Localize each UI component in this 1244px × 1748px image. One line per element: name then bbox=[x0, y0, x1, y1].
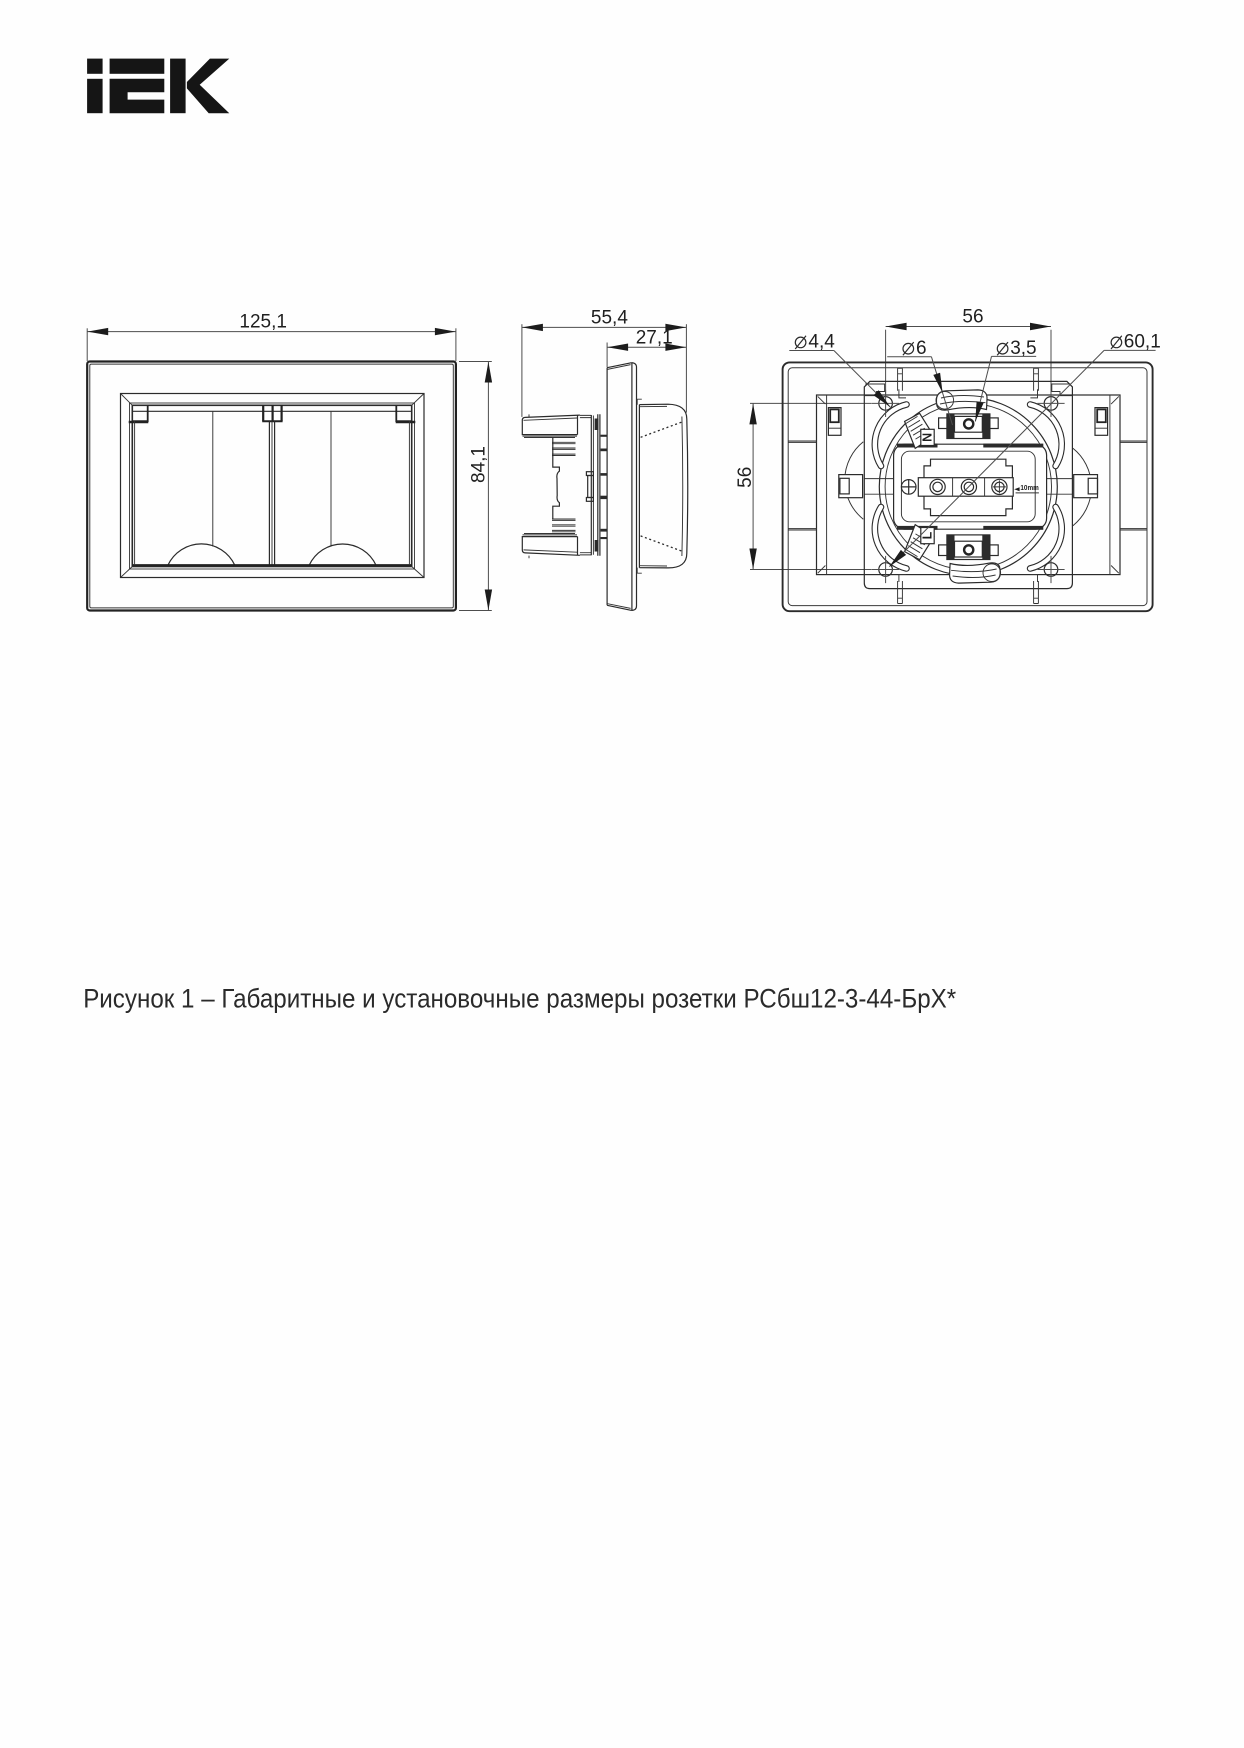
svg-text:3,5: 3,5 bbox=[1010, 338, 1036, 359]
svg-text:84,1: 84,1 bbox=[468, 446, 489, 483]
svg-text:4,4: 4,4 bbox=[808, 332, 835, 353]
svg-text:60,1: 60,1 bbox=[1124, 332, 1161, 353]
svg-text:56: 56 bbox=[735, 467, 756, 488]
svg-text:55,4: 55,4 bbox=[591, 308, 628, 329]
svg-text:Рисунок 1 – Габаритные и устан: Рисунок 1 – Габаритные и установочные ра… bbox=[83, 983, 956, 1013]
svg-text:27,1: 27,1 bbox=[636, 327, 673, 348]
svg-text:125,1: 125,1 bbox=[239, 312, 287, 333]
svg-text:10mm: 10mm bbox=[1020, 485, 1038, 492]
svg-text:N: N bbox=[921, 433, 935, 442]
svg-text:6: 6 bbox=[916, 338, 927, 359]
svg-text:56: 56 bbox=[962, 307, 983, 328]
